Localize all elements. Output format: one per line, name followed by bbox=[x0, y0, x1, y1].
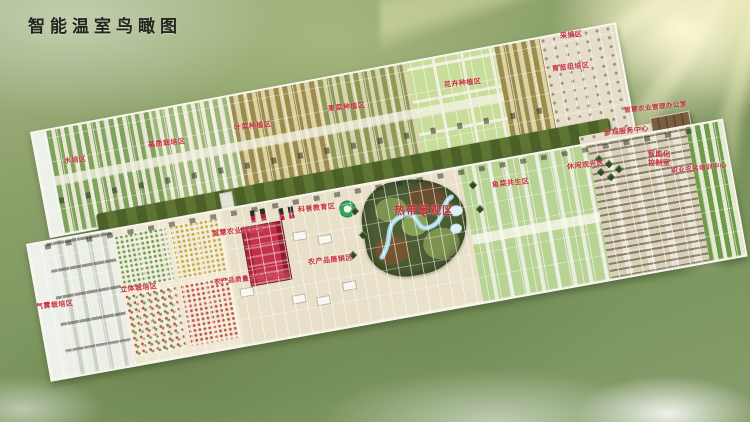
zone-label-tropical: 热带景观区 bbox=[394, 204, 454, 218]
zone-label-control-room: 智能化 控制室 bbox=[648, 150, 671, 168]
yellow-crop-plot bbox=[169, 218, 228, 280]
aerial-rendering-scene: 智能温室鸟瞰图 bbox=[0, 0, 750, 422]
green-crop-plot bbox=[114, 227, 175, 289]
page-title: 智能温室鸟瞰图 bbox=[28, 12, 182, 37]
red-crop-plot bbox=[180, 277, 240, 347]
mixed-crop-plot bbox=[125, 286, 187, 356]
tropical-landscape bbox=[355, 170, 474, 283]
